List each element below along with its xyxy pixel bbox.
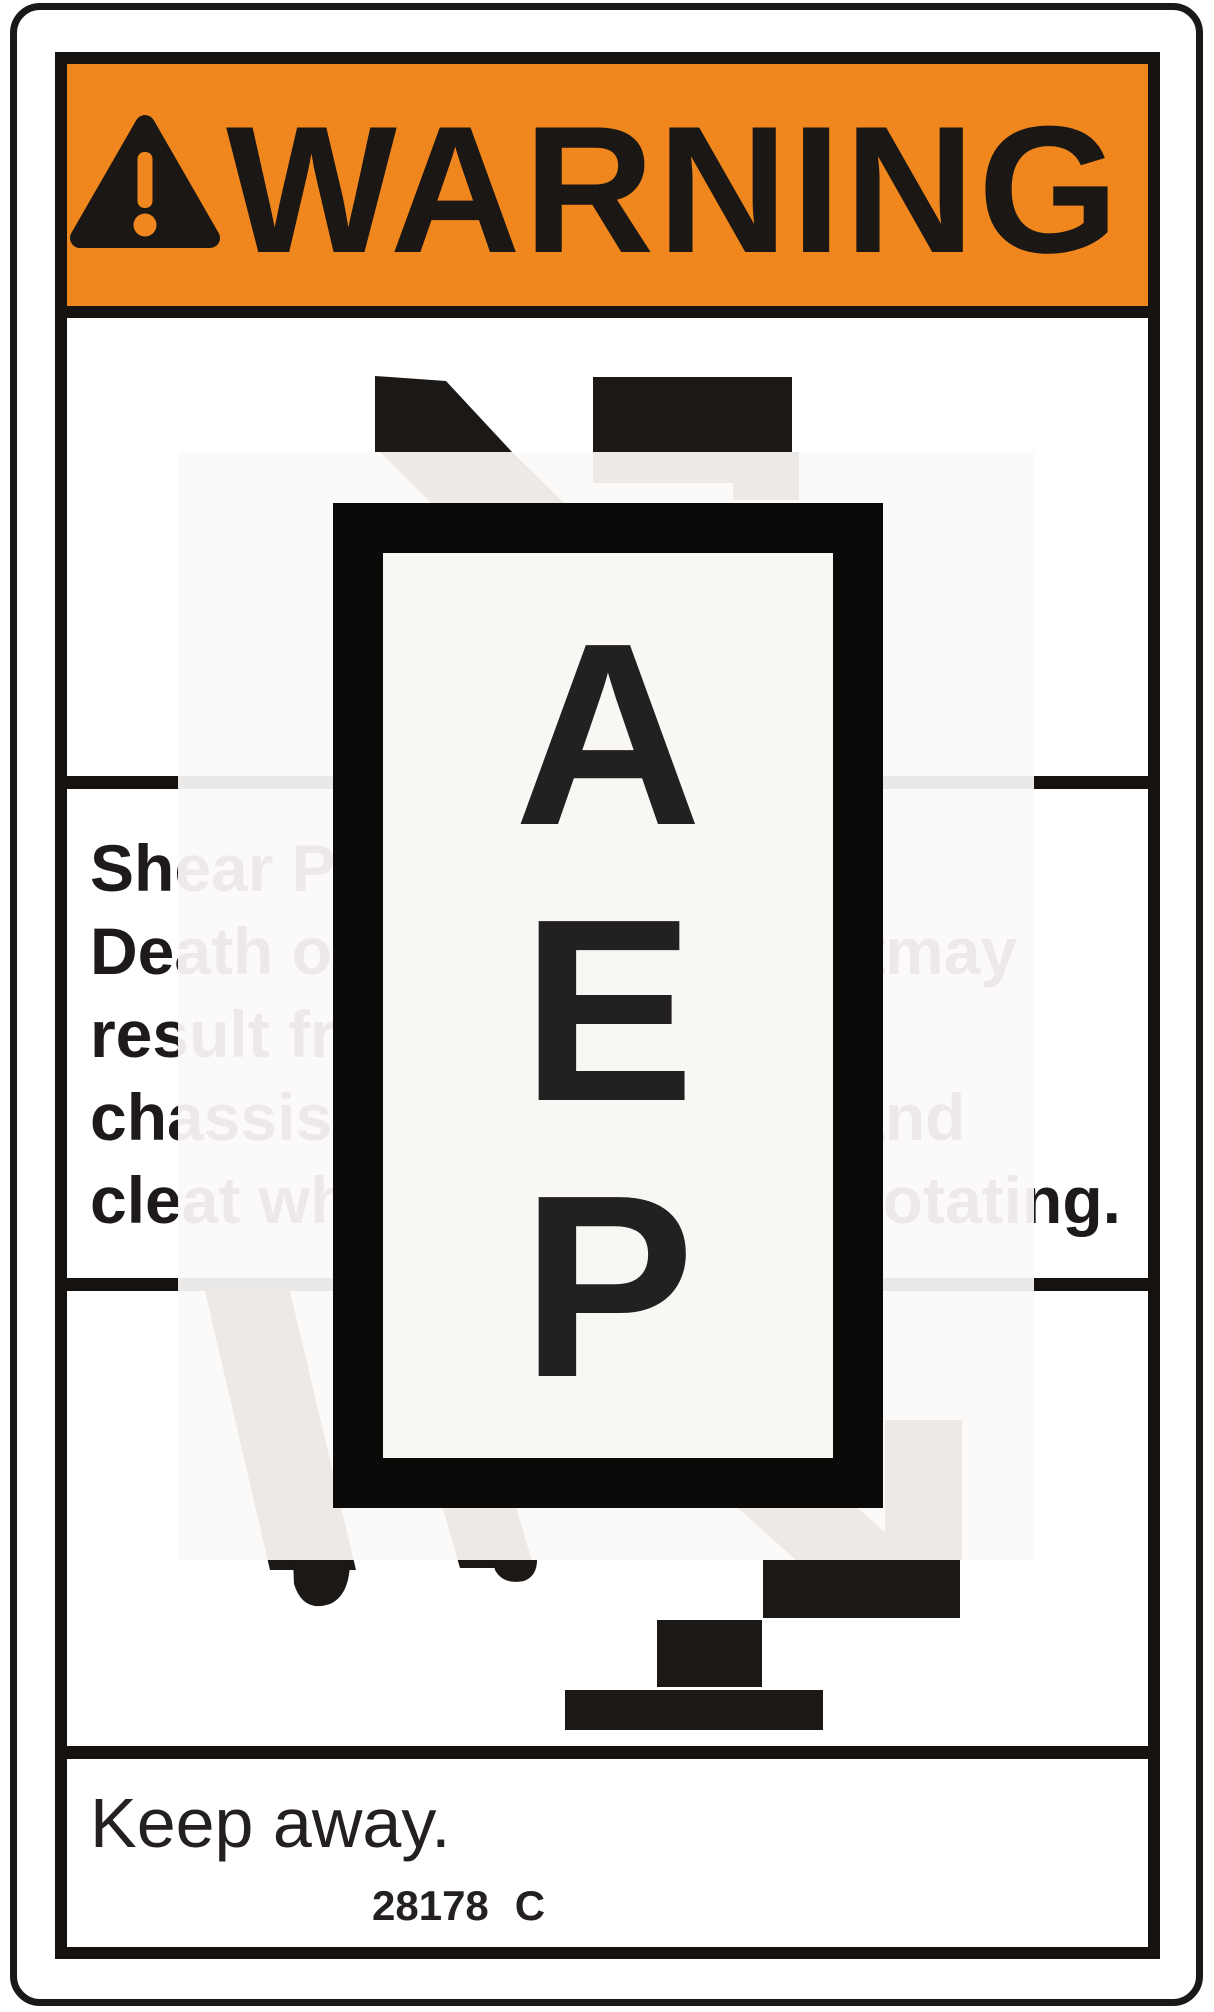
watermark-letter: A [514,590,702,880]
watermark-frame: AEP [333,503,883,1508]
watermark-letter: E [521,866,694,1156]
watermark-letter: P [521,1142,694,1432]
watermark-letters: AEP [383,553,833,1458]
warning-label: WARNING Shear Point.Death or dismemberme… [0,0,1214,2012]
